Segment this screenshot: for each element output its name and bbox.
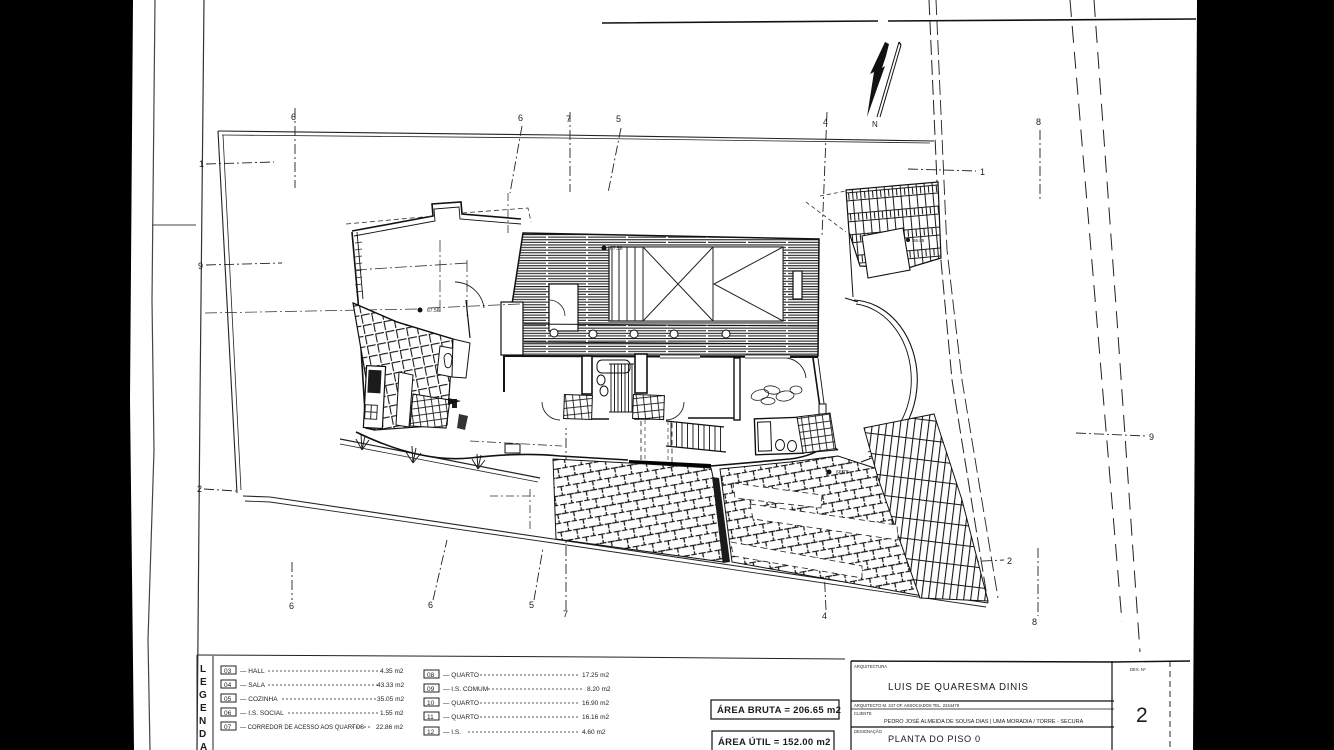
svg-text:2: 2 xyxy=(197,484,202,494)
svg-text:5: 5 xyxy=(616,114,621,124)
svg-text:— SALA: — SALA xyxy=(240,682,266,689)
svg-text:ÁREA ÚTIL = 152.00 m2: ÁREA ÚTIL = 152.00 m2 xyxy=(718,736,831,748)
svg-text:35.05 m2: 35.05 m2 xyxy=(377,696,404,703)
svg-text:— I.S. COMUM: — I.S. COMUM xyxy=(443,686,488,693)
svg-text:— QUARTO: — QUARTO xyxy=(443,672,479,679)
svg-text:2: 2 xyxy=(1136,704,1148,727)
svg-text:1: 1 xyxy=(980,167,985,177)
svg-text:4.35 m2: 4.35 m2 xyxy=(380,668,404,675)
svg-text:09: 09 xyxy=(427,686,435,693)
svg-text:PEDRO JOSÉ ALMEIDA DE SOUSA DI: PEDRO JOSÉ ALMEIDA DE SOUSA DIAS | UMA M… xyxy=(884,718,1084,725)
svg-text:DES. Nº: DES. Nº xyxy=(1130,667,1146,672)
svg-text:6: 6 xyxy=(518,113,523,123)
svg-text:4.60 m2: 4.60 m2 xyxy=(582,729,606,736)
svg-text:— HALL: — HALL xyxy=(240,668,265,675)
svg-text:6: 6 xyxy=(289,601,294,611)
svg-text:16.90 m2: 16.90 m2 xyxy=(582,700,609,707)
svg-text:8: 8 xyxy=(1032,617,1037,627)
svg-text:CLIENTE: CLIENTE xyxy=(854,711,872,716)
svg-text:— I.S.: — I.S. xyxy=(443,729,461,736)
svg-text:E: E xyxy=(200,677,207,688)
svg-text:9: 9 xyxy=(198,261,203,271)
svg-text:07: 07 xyxy=(224,724,232,731)
svg-text:ARQUITECTO M. 247 OF. ASSOCI: ARQUITECTO M. 247 OF. ASSOCIADOS TEL. 22… xyxy=(854,703,960,708)
svg-text:03: 03 xyxy=(224,668,232,675)
svg-text:LUIS DE QUARESMA DINIS: LUIS DE QUARESMA DINIS xyxy=(888,682,1029,693)
svg-text:8: 8 xyxy=(1036,117,1041,127)
svg-text:L: L xyxy=(200,664,206,675)
svg-text:— QUARTO: — QUARTO xyxy=(443,700,479,707)
svg-text:06: 06 xyxy=(224,710,232,717)
svg-text:4: 4 xyxy=(822,611,827,621)
svg-text:8.20 m2: 8.20 m2 xyxy=(587,686,611,693)
svg-text:22.86 m2: 22.86 m2 xyxy=(376,724,403,731)
svg-text:16.16 m2: 16.16 m2 xyxy=(582,714,609,721)
svg-text:1: 1 xyxy=(199,159,204,169)
svg-text:— COZINHA: — COZINHA xyxy=(240,696,278,703)
svg-text:11: 11 xyxy=(427,714,434,721)
svg-text:ÁREA BRUTA = 206.65 m2: ÁREA BRUTA = 206.65 m2 xyxy=(717,705,841,716)
svg-text:05: 05 xyxy=(224,696,232,703)
svg-text:04: 04 xyxy=(224,682,232,689)
svg-text:66.78: 66.78 xyxy=(836,470,849,476)
svg-text:5: 5 xyxy=(529,600,534,610)
svg-text:D: D xyxy=(199,729,206,740)
svg-text:E: E xyxy=(200,703,207,714)
svg-text:43.33 m2: 43.33 m2 xyxy=(377,682,404,689)
svg-text:DESIGNAÇÃO: DESIGNAÇÃO xyxy=(854,729,883,734)
svg-text:08: 08 xyxy=(427,672,435,679)
svg-text:N: N xyxy=(872,120,878,129)
svg-text:17.25 m2: 17.25 m2 xyxy=(582,672,609,679)
svg-text:9: 9 xyxy=(1149,432,1154,442)
svg-text:A: A xyxy=(200,742,207,750)
svg-text:PLANTA DO PISO 0: PLANTA DO PISO 0 xyxy=(888,734,981,744)
svg-text:G: G xyxy=(199,690,207,701)
svg-text:67.56: 67.56 xyxy=(427,308,440,314)
svg-text:4: 4 xyxy=(823,117,828,127)
svg-text:10: 10 xyxy=(427,700,435,707)
svg-text:66.95: 66.95 xyxy=(913,238,925,243)
svg-text:12: 12 xyxy=(427,729,435,736)
svg-text:ARQUITECTURA: ARQUITECTURA xyxy=(854,664,887,669)
svg-text:6: 6 xyxy=(428,600,433,610)
svg-text:N: N xyxy=(199,716,206,727)
svg-text:1.55 m2: 1.55 m2 xyxy=(380,710,404,717)
svg-text:— CORREDOR DE ACESSO AOS QUART: — CORREDOR DE ACESSO AOS QUARTOS xyxy=(240,725,364,731)
svg-text:2: 2 xyxy=(1007,556,1012,566)
svg-text:— QUARTO: — QUARTO xyxy=(443,714,479,721)
svg-text:67.56: 67.56 xyxy=(610,246,623,252)
svg-text:— I.S. SOCIAL: — I.S. SOCIAL xyxy=(240,710,284,717)
svg-text:7: 7 xyxy=(563,609,568,619)
